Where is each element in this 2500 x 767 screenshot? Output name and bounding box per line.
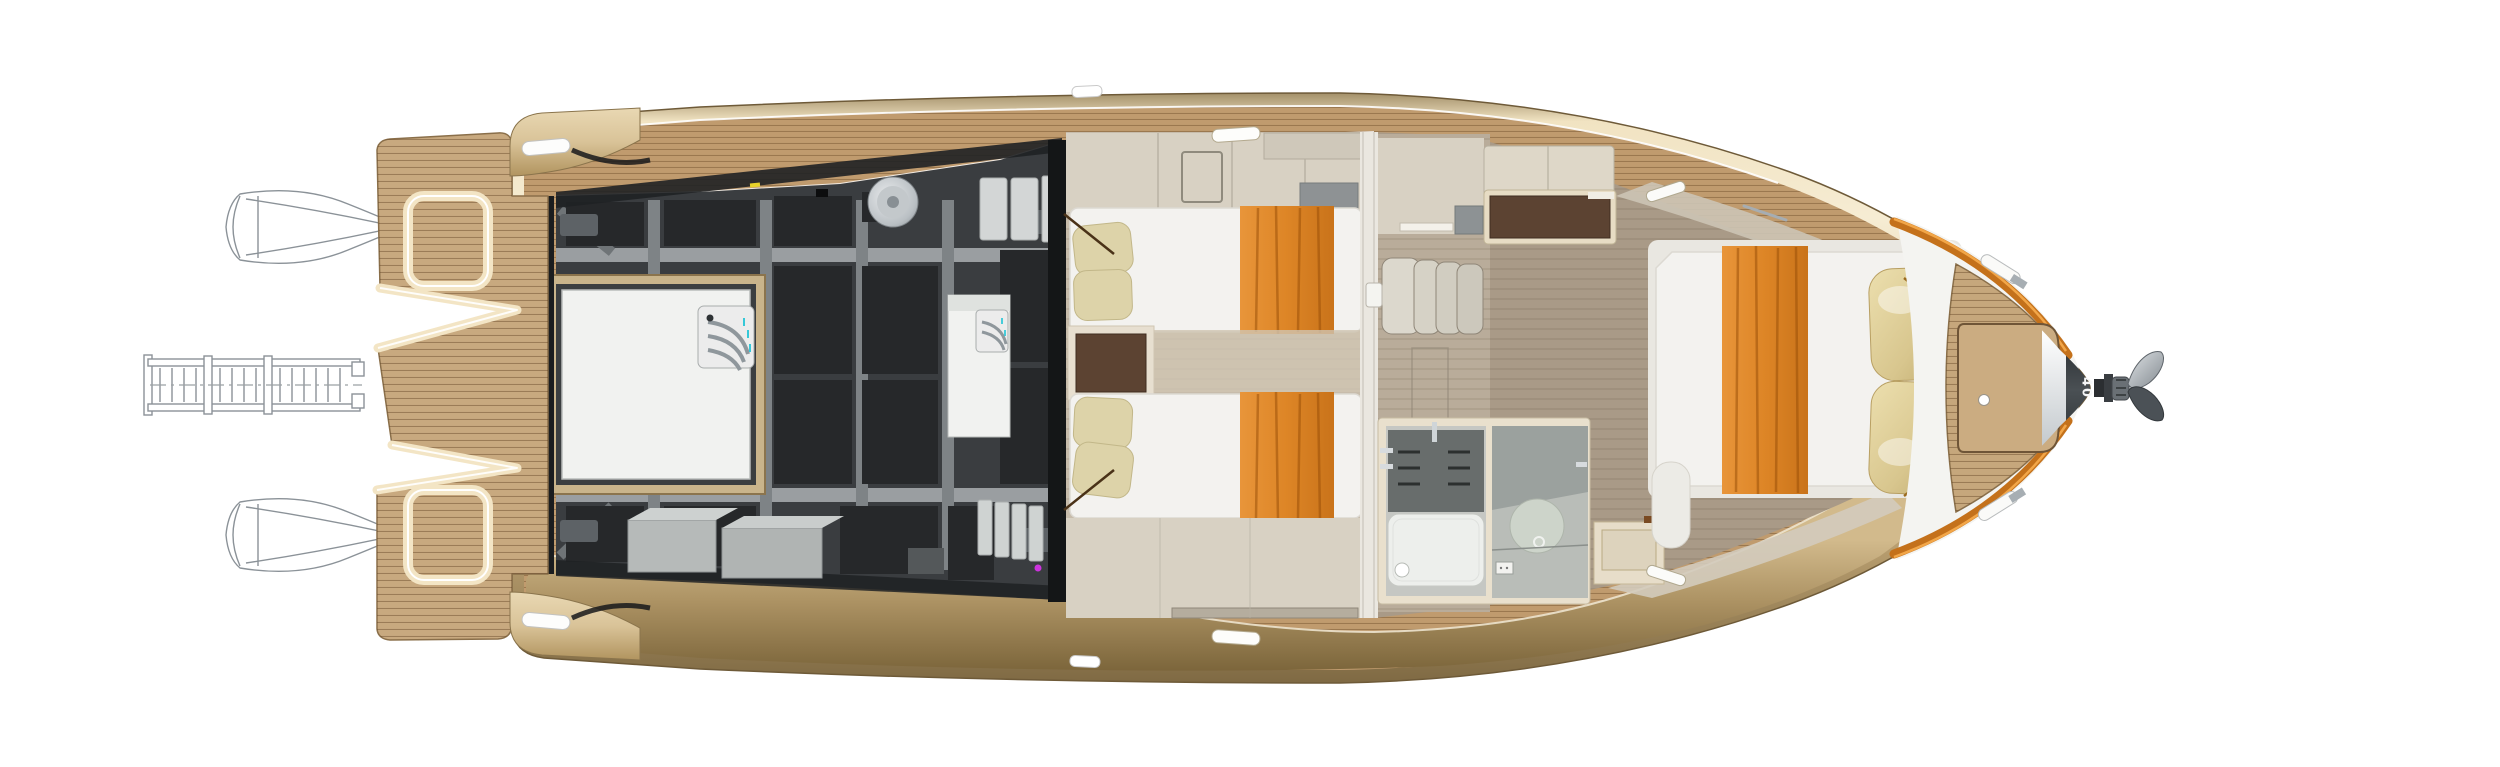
- hull-marking: 40: [2079, 377, 2094, 399]
- propeller-blade-bottom: [2128, 387, 2164, 421]
- companionway-stairs: [1382, 258, 1483, 334]
- guest-cabin-forward-wall: [1066, 133, 1376, 212]
- pillow: [1073, 269, 1133, 321]
- guest-bed-upper: [1064, 206, 1362, 334]
- propeller-blade-top: [2128, 352, 2164, 389]
- seat-pod: [1652, 462, 1690, 548]
- hatch-pull-ring: [1979, 395, 1990, 406]
- power-socket: [1496, 562, 1513, 574]
- pillow: [1073, 397, 1134, 450]
- bathroom: [1378, 418, 1590, 604]
- main-engine-hatch: [547, 275, 765, 494]
- bow-area: 40: [1894, 216, 2164, 560]
- water-heater: [868, 177, 918, 227]
- passerelle: [144, 355, 364, 415]
- wall-locker: [1300, 183, 1358, 210]
- pillow: [1071, 441, 1135, 500]
- hatch-manifold: [698, 306, 754, 370]
- deck-hatch-bottom-outer: [1070, 655, 1101, 668]
- engine-room: [547, 138, 1066, 602]
- deck-plan-canvas: 40: [0, 0, 2500, 767]
- shower: [1380, 422, 1486, 596]
- wardrobe: [1484, 146, 1616, 244]
- engine-room-bulkhead: [1048, 140, 1066, 602]
- guest-cabin-aft-wall: [1066, 518, 1376, 618]
- swim-platform: [377, 133, 548, 640]
- nightstand: [1068, 326, 1154, 400]
- yacht-deck-plan: 40: [0, 0, 2500, 767]
- companionway-wall: [1378, 138, 1484, 234]
- pillow: [1072, 221, 1135, 277]
- guest-cabin: [1064, 132, 1378, 618]
- deck-hatch-bottom: [1212, 629, 1261, 645]
- washroom: [1492, 426, 1588, 598]
- deck-hatch-top-outer: [1072, 85, 1103, 98]
- door-latch: [1366, 283, 1382, 307]
- cabin-floor-strip: [1154, 330, 1376, 392]
- washbasin: [1510, 499, 1564, 553]
- shower-drain: [1395, 563, 1409, 577]
- service-unit: [948, 295, 1010, 437]
- cabin-door: [1360, 132, 1378, 618]
- guest-bed-lower: [1064, 392, 1362, 520]
- propeller: [2094, 352, 2164, 421]
- door-handle: [1576, 462, 1587, 467]
- shower-column: [1432, 422, 1437, 442]
- deck-hatch-top: [1212, 126, 1261, 142]
